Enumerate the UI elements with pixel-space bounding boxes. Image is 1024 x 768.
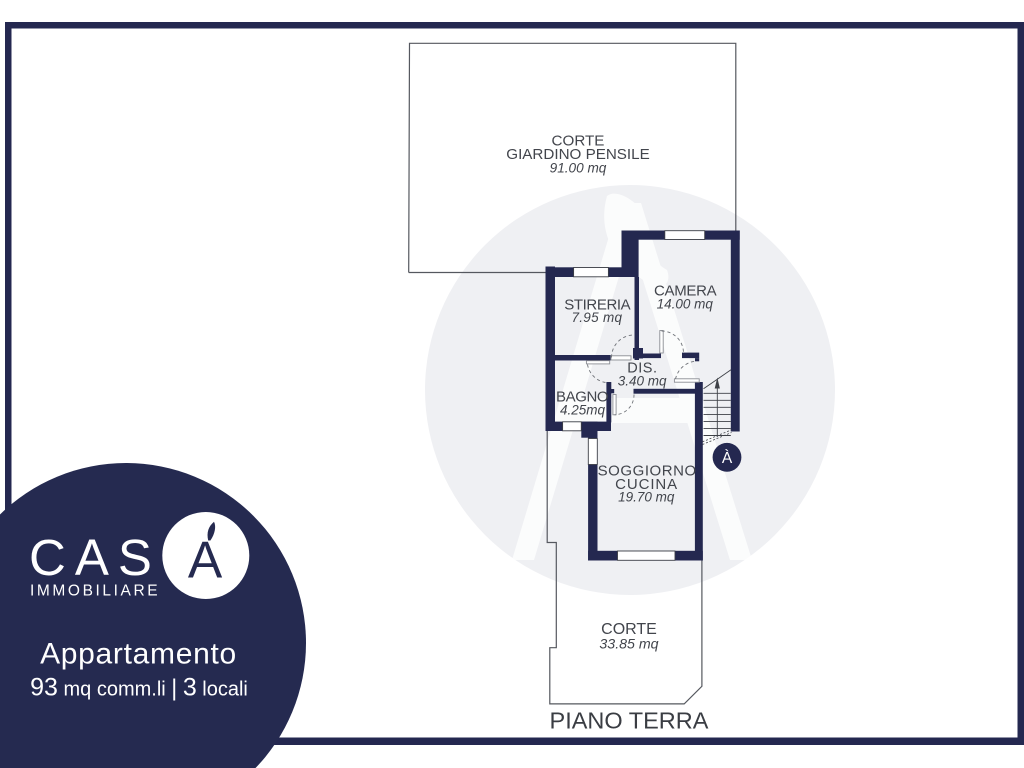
svg-text:PIANO TERRA: PIANO TERRA	[550, 707, 709, 733]
svg-text:33.85 mq: 33.85 mq	[599, 637, 658, 653]
svg-text:À: À	[722, 450, 733, 467]
svg-text:IMMOBILIARE: IMMOBILIARE	[30, 583, 160, 600]
svg-text:A: A	[188, 531, 223, 589]
svg-text:3.40 mq: 3.40 mq	[618, 374, 667, 389]
svg-text:CAS: CAS	[29, 529, 161, 586]
svg-text:4.25mq: 4.25mq	[560, 403, 606, 418]
svg-text:14.00 mq: 14.00 mq	[657, 297, 714, 312]
svg-text:19.70 mq: 19.70 mq	[618, 490, 675, 505]
svg-text:91.00 mq: 91.00 mq	[550, 161, 607, 176]
svg-text:7.95 mq: 7.95 mq	[571, 310, 622, 325]
svg-text:Appartamento: Appartamento	[40, 637, 237, 670]
svg-text:93 mq comm.li | 3 locali: 93 mq comm.li | 3 locali	[30, 674, 248, 702]
